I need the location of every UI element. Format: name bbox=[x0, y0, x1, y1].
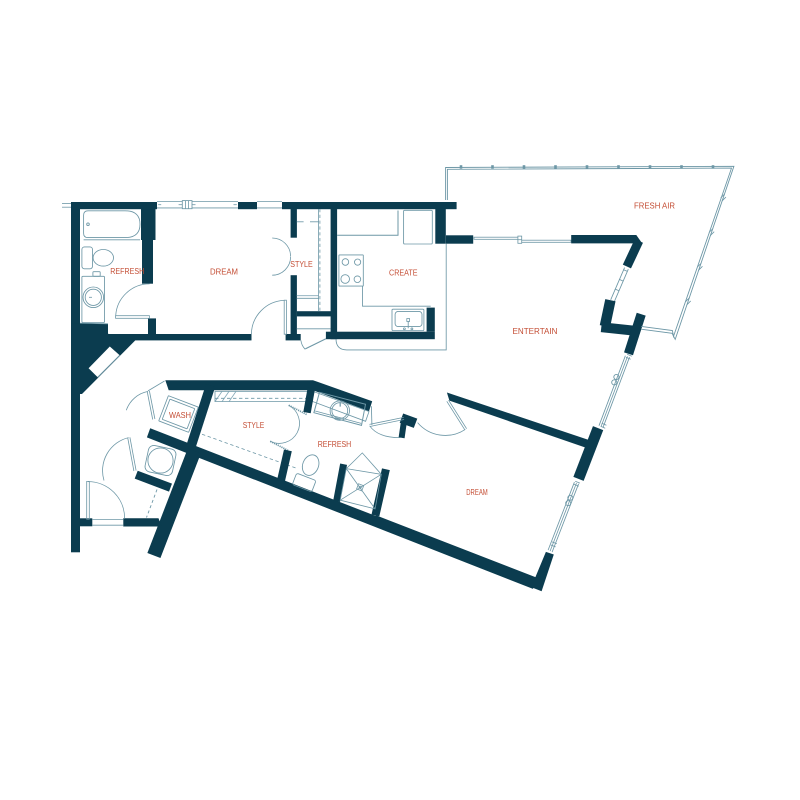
svg-text:STYLE: STYLE bbox=[243, 420, 265, 430]
svg-text:REFRESH: REFRESH bbox=[110, 266, 144, 276]
svg-text:WASH: WASH bbox=[169, 410, 191, 420]
svg-text:DREAM: DREAM bbox=[210, 266, 238, 276]
svg-text:REFRESH: REFRESH bbox=[318, 439, 352, 449]
svg-text:FRESH AIR: FRESH AIR bbox=[634, 200, 675, 210]
svg-text:ENTERTAIN: ENTERTAIN bbox=[513, 326, 558, 336]
svg-text:STYLE: STYLE bbox=[290, 259, 313, 269]
svg-text:CREATE: CREATE bbox=[389, 267, 418, 277]
svg-text:DREAM: DREAM bbox=[466, 487, 488, 497]
